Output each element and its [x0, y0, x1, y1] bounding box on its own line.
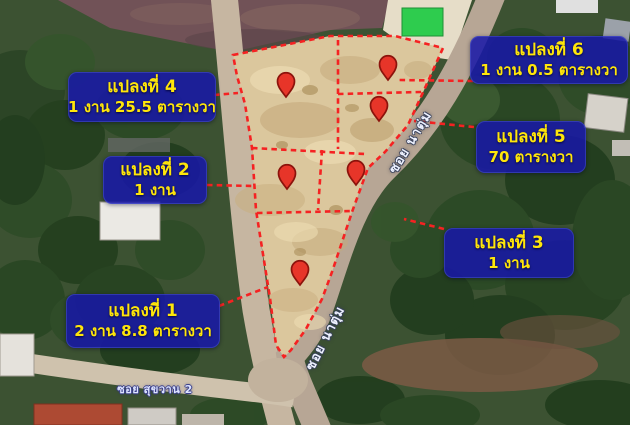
green-roof-building — [402, 8, 443, 36]
plot-title: แปลงที่ 5 — [476, 126, 586, 148]
plot-area: 1 งาน — [103, 181, 207, 201]
road-junction — [248, 358, 308, 402]
plot-label-3: แปลงที่ 3 1 งาน — [444, 228, 574, 278]
plot-title: แปลงที่ 1 — [66, 300, 220, 322]
plot-label-4: แปลงที่ 4 1 งาน 25.5 ตารางวา — [68, 72, 216, 122]
plot-area: 1 งาน 25.5 ตารางวา — [68, 98, 216, 118]
plot-label-6: แปลงที่ 6 1 งาน 0.5 ตารางวา — [470, 36, 628, 84]
plot-title: แปลงที่ 3 — [444, 232, 574, 254]
annotated-satellite-map: แปลงที่ 4 1 งาน 25.5 ตารางวา แปลงที่ 6 1… — [0, 0, 630, 425]
plot-area: 1 งาน 0.5 ตารางวา — [470, 61, 628, 81]
plot-label-2: แปลงที่ 2 1 งาน — [103, 156, 207, 204]
plot-label-1: แปลงที่ 1 2 งาน 8.8 ตารางวา — [66, 294, 220, 348]
street-name-bottom: ซอย สุขวาน 2 — [117, 380, 192, 398]
plot-title: แปลงที่ 6 — [470, 39, 628, 61]
plot-label-5: แปลงที่ 5 70 ตารางวา — [476, 121, 586, 173]
plot-area: 2 งาน 8.8 ตารางวา — [66, 322, 220, 342]
plot-area: 1 งาน — [444, 254, 574, 274]
field-patch — [240, 4, 360, 32]
plot-area: 70 ตารางวา — [476, 148, 586, 168]
plot-title: แปลงที่ 2 — [103, 159, 207, 181]
plot-title: แปลงที่ 4 — [68, 76, 216, 98]
clearing — [500, 315, 620, 349]
